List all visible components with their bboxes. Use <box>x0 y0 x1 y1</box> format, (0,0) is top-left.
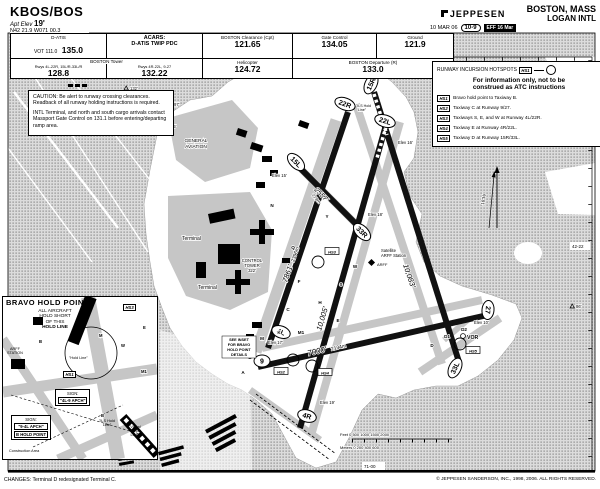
hotspot-text: Bravo hold point to Taxiway B. <box>453 96 517 101</box>
see-inset-line-4: DETAILS <box>231 353 247 357</box>
twy-s: S <box>339 282 342 287</box>
departure-cell: BOSTON Departure (R) 133.0 <box>293 59 453 78</box>
inset-ils-hold-label-2: Line" <box>99 423 115 427</box>
satellite-arff-label-2: ARFF Station <box>381 253 407 258</box>
hotspot-text: Taxiways S, E, and W at Runway 4L/22R. <box>453 116 542 121</box>
inset-title: BRAVO HOLD POINT <box>6 298 89 307</box>
jeppesen-logo-mark <box>441 10 448 17</box>
hotspots-note-2: construed as ATC instructions <box>437 84 600 91</box>
twy-m1: M1 <box>298 330 305 335</box>
elev-15l: Elev 15' <box>272 173 287 178</box>
acars-value: D-ATIS TWIP PDC <box>108 41 201 47</box>
apt-elev-value: 19' <box>34 19 45 28</box>
scale-feet-label: Feet 0 500 1000 1500 2000 <box>340 432 390 437</box>
inset-sign-9-4l-apch: SIGN: "9-4L APCH" B HOLD POINT <box>11 415 51 440</box>
hs5-badge: HS5 <box>469 349 478 354</box>
helicopter-cell: Helicopter 124.72 <box>203 59 293 78</box>
hs2-badge: HS2 <box>277 370 286 375</box>
airport-identifier: KBOS/BOS <box>10 4 83 19</box>
see-inset-line-2: FOR BRAVO <box>228 343 251 347</box>
inset-twy-m1: M1 <box>141 369 147 374</box>
vot-frequency: VOT 111.0 <box>34 49 57 55</box>
terminal-label-1: Terminal <box>182 236 201 242</box>
latitude-label-2: 42-22 <box>572 244 584 249</box>
twy-w: W <box>353 264 358 269</box>
elev-22l: Elev 16' <box>398 140 413 145</box>
twy-m: M <box>260 336 264 341</box>
hotspot-id-badge: HS2 <box>437 105 450 112</box>
twy-d1: D1 <box>444 334 450 339</box>
inset-twy-m: M <box>99 333 103 338</box>
arff-label: ARFF <box>377 262 388 267</box>
hotspot-id-badge: HS4 <box>437 125 450 132</box>
twy-q: Q <box>291 245 295 250</box>
ground-frequency: 121.9 <box>378 40 452 49</box>
hotspot-item: HS1 Bravo hold point to Taxiway B. <box>437 95 600 102</box>
hotspot-text: Taxiway C at Runway 9/27. <box>453 106 511 111</box>
datis-cell: D-ATIS VOT 111.0 135.0 <box>11 34 107 58</box>
rwy-27-label: 27 <box>483 306 491 314</box>
bravo-hold-point-inset: B W E M M1 B BRAVO HOLD POINT ALL AIRCRA… <box>2 296 158 460</box>
departure-frequency: 133.0 <box>294 65 452 74</box>
acars-cell: ACARS: D-ATIS TWIP PDC <box>107 34 203 58</box>
header-left: KBOS/BOS Apt Elev 19' N42 21.9 W071 00.3 <box>10 4 89 34</box>
inset-twy-b2: B <box>101 413 104 418</box>
clearance-cell: BOSTON Clearance (Cpt) 121.65 <box>203 34 293 58</box>
tower-subcell-2: Rwys 4R-22L, 9-27 132.22 <box>107 64 202 78</box>
hotspot-text: Taxiway D at Runway 15R/33L. <box>453 136 520 141</box>
hotspot-id-badge: HS5 <box>437 135 450 142</box>
inset-visual-hold-label-3: Line" <box>129 433 141 437</box>
ground-cell: Ground 121.9 <box>377 34 453 58</box>
inset-note-4: HOLD LINE <box>25 325 85 330</box>
inset-sign1-label: SIGN: <box>58 391 87 396</box>
gate-control-cell: Gate Control 134.05 <box>293 34 377 58</box>
twy-f: F <box>298 279 301 284</box>
hotspot-item: HS3 Taxiways S, E, and W at Runway 4L/22… <box>437 115 600 122</box>
elev-4r: Elev 19' <box>320 400 335 405</box>
terminal-label-2: Terminal <box>198 285 217 291</box>
inset-sign2-label: SIGN: <box>14 417 48 422</box>
chart-date: 10 MAR 06 <box>430 25 458 31</box>
vor-label: VOR <box>467 335 478 341</box>
tower-subcell-1: Rwys 4L-22R, 15L/R-33L/R 128.8 <box>11 64 107 78</box>
general-aviation-label-2: AVIATION <box>185 144 207 150</box>
hs4-badge: HS4 <box>321 371 330 376</box>
jeppesen-airport-chart-page: 4L 22R 4R 22L 9 27 15R 33L 15L 33R 7861'… <box>0 0 600 489</box>
jeppesen-brand-text: JEPPESEN <box>450 9 506 19</box>
see-inset-note: SEE INSET FOR BRAVO HOLD POINT DETAILS <box>222 336 256 358</box>
chart-airport-name: LOGAN INTL <box>527 14 596 23</box>
tower-frequency-1: 128.8 <box>11 69 106 78</box>
clearance-frequency: 121.65 <box>204 40 291 49</box>
hotspot-symbol-badge: HS1 <box>519 67 532 74</box>
hs3-badge: HS3 <box>328 250 337 255</box>
hotspot-item: HS2 Taxiway C at Runway 9/27. <box>437 105 600 112</box>
hotspot-item: HS4 Taxiway E at Runway 4R/22L. <box>437 125 600 132</box>
tower-cell: BOSTON Tower Rwys 4L-22R, 15L/R-33L/R 12… <box>11 59 203 78</box>
caution-text-2: INTL Terminal, and north and south cargo… <box>33 110 169 129</box>
inset-sign2-text: "9-4L APCH" <box>14 423 48 430</box>
elev-33r: Elev 18' <box>368 212 383 217</box>
inset-sign-4l-9-apch: SIGN: "4L-9 APCH" <box>55 389 90 406</box>
obstruction-97: 97' <box>174 102 180 107</box>
see-inset-line-3: HOLD POINT <box>227 348 251 352</box>
inset-hs1-badge: HS1 <box>63 371 76 378</box>
caution-note-box: CAUTION: Be alert to runway crossing cle… <box>28 90 174 136</box>
inset-sign1-text: "4L-9 APCH" <box>58 397 87 404</box>
inset-arff-label-2: STATION <box>7 351 23 355</box>
twy-d2: D2 <box>461 327 467 332</box>
scale-meters-label: Meters 0 200 400 600 <box>340 445 380 450</box>
inset-hs3-badge: HS3 <box>123 304 136 311</box>
longitude-bottom-label: 71-00 <box>364 464 376 469</box>
helicopter-frequency: 124.72 <box>204 65 291 74</box>
inset-twy-w: W <box>121 343 125 348</box>
effective-date-badge: EFF 16 Mar <box>484 24 517 32</box>
inset-twy-b: B <box>39 339 42 344</box>
inset-hold-line-label: "Hold Line" <box>69 356 88 360</box>
hotspots-note-1: For information only, not to be <box>437 77 600 84</box>
comms-row-1: D-ATIS VOT 111.0 135.0 ACARS: D-ATIS TWI… <box>11 34 453 59</box>
hotspot-symbol-circle-icon <box>546 65 556 75</box>
twy-e: E <box>336 318 339 323</box>
inset-twy-e: E <box>143 325 146 330</box>
runway-incursion-hotspots-box: RUNWAY INCURSION HOTSPOTS HS1 For inform… <box>432 61 600 147</box>
changes-note: CHANGES: Terminal D redesignated Termina… <box>4 477 116 483</box>
hotspot-id-badge: HS3 <box>437 115 450 122</box>
communications-table: D-ATIS VOT 111.0 135.0 ACARS: D-ATIS TWI… <box>10 33 454 79</box>
see-inset-line-1: SEE INSET <box>229 338 250 342</box>
comms-row-2: BOSTON Tower Rwys 4L-22R, 15L/R-33L/R 12… <box>11 59 453 78</box>
tower-frequency-2: 132.22 <box>107 69 202 78</box>
hotspot-item: HS5 Taxiway D at Runway 15R/33L. <box>437 135 600 142</box>
jeppesen-logo: JEPPESEN <box>430 4 516 22</box>
control-tower-label-3: 322' <box>248 268 256 273</box>
elev-9: Elev 17' <box>268 340 283 345</box>
hotspots-title: RUNWAY INCURSION HOTSPOTS <box>437 67 517 73</box>
ils-hold-line-label-2: Line" <box>358 108 367 112</box>
copyright-note: © JEPPESEN SANDERSON, INC., 1998, 2006. … <box>436 477 596 482</box>
datis-frequency: 135.0 <box>62 45 83 55</box>
hotspot-text: Taxiway E at Runway 4R/22L. <box>453 126 517 131</box>
hotspot-symbol-line <box>534 70 544 71</box>
elev-27: Elev 10' <box>474 320 489 325</box>
hotspot-id-badge: HS1 <box>437 95 450 102</box>
caution-text-1: CAUTION: Be alert to runway crossing cle… <box>33 94 169 107</box>
inset-b-hold-point-label: B HOLD POINT <box>14 431 48 438</box>
chart-index-number: 10-9 <box>461 24 481 32</box>
general-aviation-label-1: GENERAL <box>185 138 208 144</box>
airport-elevation: Apt Elev 19' <box>10 19 83 28</box>
header-right: JEPPESEN 10 MAR 06 10-9 EFF 16 Mar BOSTO… <box>430 4 596 32</box>
rwy-9-label: 9 <box>260 358 264 365</box>
twy-y: Y <box>325 214 328 219</box>
obstruction-86: 86' <box>576 304 582 309</box>
gate-control-frequency: 134.05 <box>294 40 375 49</box>
chart-city: BOSTON, MASS <box>527 4 596 14</box>
inset-construction-area-label: Construction Area <box>9 449 39 453</box>
